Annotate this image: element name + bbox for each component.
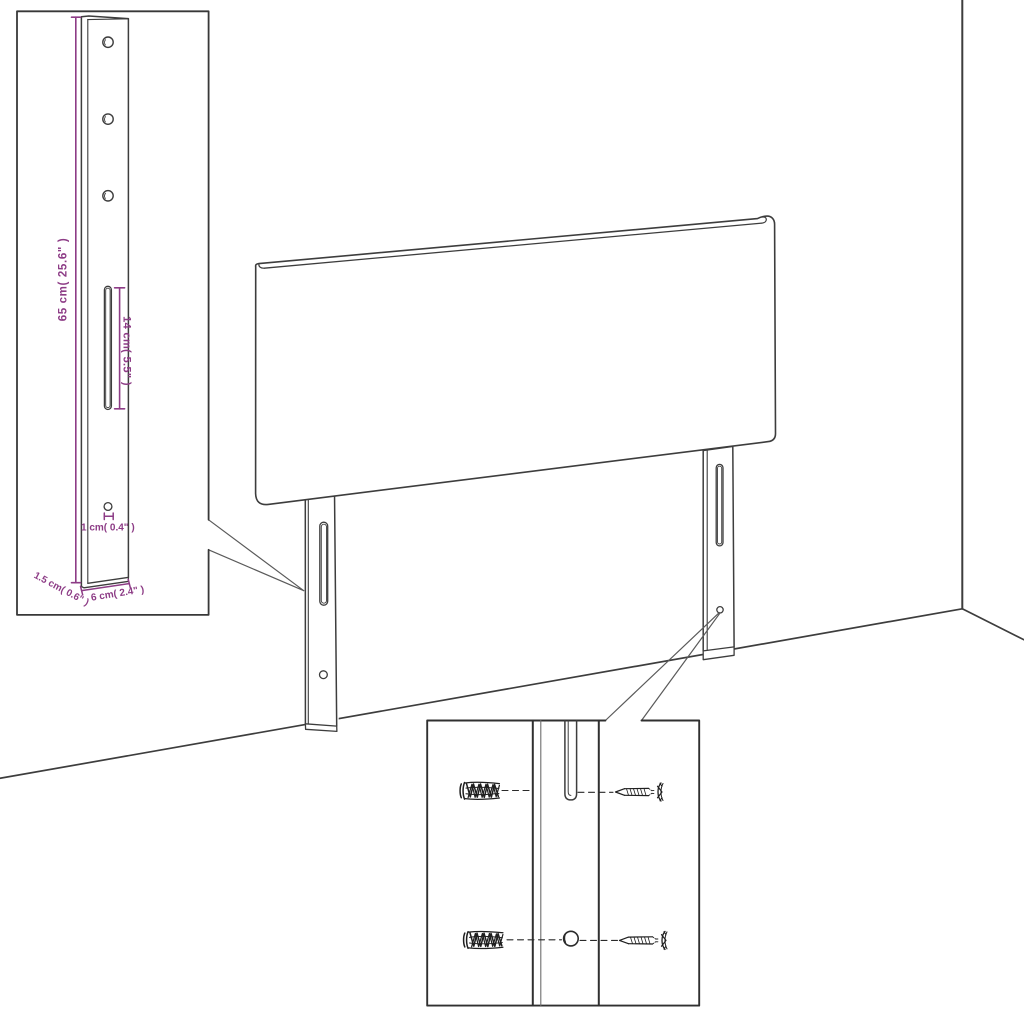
svg-text:65 cm( 25.6" ): 65 cm( 25.6" ) — [58, 238, 70, 322]
svg-text:14 cm( 5.5" ): 14 cm( 5.5" ) — [121, 316, 133, 386]
svg-text:1 cm( 0.4" ): 1 cm( 0.4" ) — [81, 523, 135, 534]
